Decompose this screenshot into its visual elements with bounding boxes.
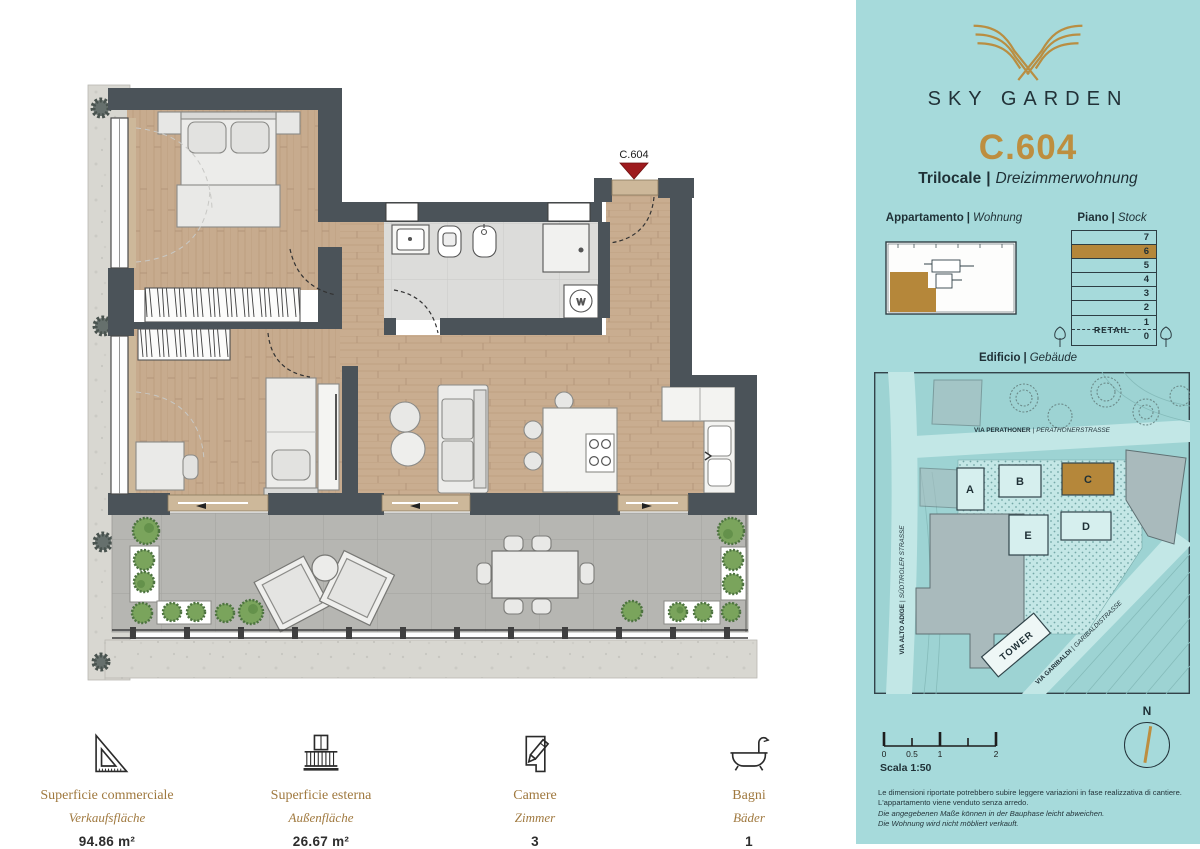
coffee-table <box>391 432 425 466</box>
kitchen-counter <box>662 387 735 421</box>
brand-title: SKY GARDEN <box>856 88 1200 111</box>
desk-chair <box>183 455 198 479</box>
unit-type: Trilocale|Dreizimmerwohnung <box>856 170 1200 188</box>
nightstand <box>276 112 300 134</box>
floor-stack-highlighted-row: 6 <box>1072 245 1156 259</box>
block-label: B <box>1016 476 1024 488</box>
unit-type-it: Trilocale <box>918 170 981 187</box>
block-label: E <box>1024 530 1031 542</box>
washer-label: W <box>577 297 586 307</box>
stat-label-de: Zimmer <box>428 810 642 826</box>
info-sidebar: SKY GARDEN C.604 Trilocale|Dreizimmerwoh… <box>856 0 1200 844</box>
floorplan-sheet: W <box>0 0 1200 844</box>
scale-bar: 0 0.5 1 2 <box>880 728 1004 762</box>
apartment-locator-diagram <box>884 238 1018 318</box>
street-label-alto-adige: VIA ALTO ADIGE|SÜDTIROLER STRASSE <box>898 525 906 655</box>
stat-commercial-area: Superficie commerciale Verkaufsfläche 94… <box>0 726 214 849</box>
svg-text:0.5: 0.5 <box>906 749 918 759</box>
street-label-perathoner: VIA PERATHONER|PERATHONERSTRASSE <box>974 427 1111 434</box>
stat-external-area: Superficie esterna Außenfläche 26.67 m² <box>214 726 428 849</box>
unit-code: C.604 <box>856 128 1200 168</box>
unit-type-de: Dreizimmerwohnung <box>996 170 1138 187</box>
coffee-table <box>390 402 420 432</box>
stat-label-de: Außenfläche <box>214 810 428 826</box>
stat-label-it: Bagni <box>642 788 856 804</box>
site-plan: A B C D E TOWER VIA PERATHONER|PERATHONE… <box>874 372 1190 694</box>
entrance-arrow-icon <box>620 163 648 179</box>
stat-bathrooms: Bagni Bäder 1 <box>642 726 856 849</box>
stool <box>524 452 542 470</box>
stool <box>555 392 573 410</box>
room-plan-icon <box>428 726 642 778</box>
desk <box>136 442 184 490</box>
floorplan-drawing: W <box>0 0 856 700</box>
svg-text:1: 1 <box>938 749 943 759</box>
tree-icon <box>1158 326 1174 348</box>
nightstand <box>158 112 182 134</box>
stat-label-it: Camere <box>428 788 642 804</box>
compass-icon <box>1124 722 1170 768</box>
bed-blanket <box>177 185 280 227</box>
sky-garden-logo-icon <box>856 16 1200 84</box>
svg-text:2: 2 <box>994 749 999 759</box>
block-label: D <box>1082 521 1090 533</box>
disclaimer: Le dimensioni riportate potrebbero subir… <box>878 788 1184 829</box>
floor-heading: Piano|Stock <box>1052 212 1172 224</box>
stat-label-de: Bäder <box>642 810 856 826</box>
svg-text:0: 0 <box>882 749 887 759</box>
bathtub-icon <box>642 726 856 778</box>
stat-label-it: Superficie esterna <box>214 788 428 804</box>
outdoor-table <box>492 551 578 598</box>
block-label: C <box>1084 474 1092 486</box>
entry-floor <box>606 192 672 337</box>
stat-label-de: Verkaufsfläche <box>0 810 214 826</box>
stat-value: 1 <box>642 834 856 849</box>
unit-marker: C.604 <box>619 149 648 179</box>
building-caption: Edificio|Gebäude <box>856 352 1200 364</box>
floorplan-panel: W <box>0 0 856 844</box>
compass-north-label: N <box>1124 704 1170 718</box>
bidet <box>473 226 496 257</box>
stool <box>524 421 542 439</box>
sink <box>708 459 731 486</box>
stat-label-it: Superficie commerciale <box>0 788 214 804</box>
stats-row: Superficie commerciale Verkaufsfläche 94… <box>0 726 856 849</box>
tree-icon <box>1052 326 1068 348</box>
balcony-icon <box>214 726 428 778</box>
apartment-heading: Appartamento|Wohnung <box>874 212 1034 224</box>
cooktop <box>586 434 614 472</box>
unit-marker-label: C.604 <box>619 149 648 161</box>
sink <box>708 426 731 456</box>
stat-value: 3 <box>428 834 642 849</box>
stat-rooms: Camere Zimmer 3 <box>428 726 642 849</box>
set-square-icon <box>0 726 214 778</box>
stat-value: 26.67 m² <box>214 834 428 849</box>
stat-value: 94.86 m² <box>0 834 214 849</box>
block-label: A <box>966 484 974 496</box>
floor-stack-diagram: 7 6 5 4 3 2 RETAIL 1 0 <box>1071 230 1157 346</box>
scale-label: Scala 1:50 <box>880 762 931 774</box>
corridor-floor <box>340 222 388 382</box>
